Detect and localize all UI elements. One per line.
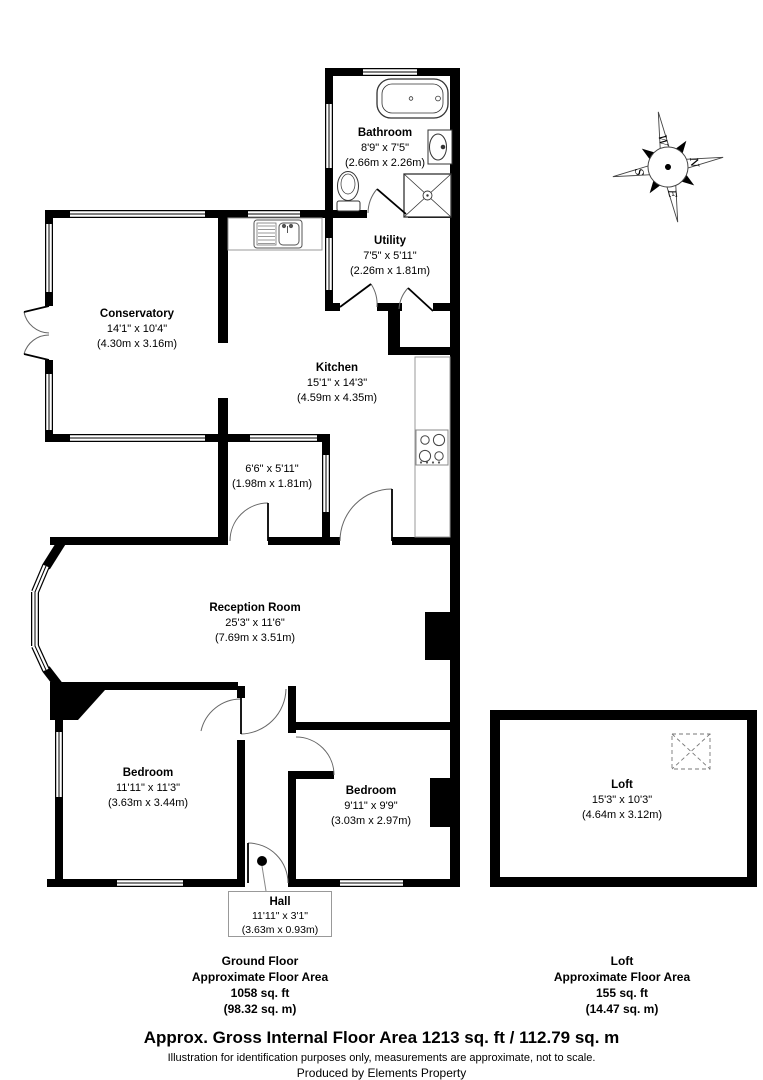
hob-icon (416, 430, 448, 465)
disclaimer-text: Illustration for identification purposes… (0, 1051, 763, 1065)
room-label-utility: Utility 7'5" x 5'11" (2.26m x 1.81m) (350, 234, 430, 279)
room-label-kitchen: Kitchen 15'1" x 14'3" (4.59m x 4.35m) (297, 361, 377, 406)
room-label-lobby: 6'6" x 5'11" (1.98m x 1.81m) (232, 462, 312, 492)
compass-e-label: E (665, 188, 679, 199)
kitchen-sink-icon (254, 220, 302, 248)
room-label-conservatory: Conservatory 14'1" x 10'4" (4.30m x 3.16… (97, 307, 177, 352)
room-label-reception: Reception Room 25'3" x 11'6" (7.69m x 3.… (209, 601, 300, 646)
room-label-bedroom2: Bedroom 9'11" x 9'9" (3.03m x 2.97m) (331, 784, 411, 829)
compass-s-label: S (632, 167, 646, 177)
loft-area-summary: Loft Approximate Floor Area 155 sq. ft (… (554, 953, 690, 1017)
floorplan-canvas: N E S W Bathroom 8'9" x 7'5" (2.66m x 2.… (0, 0, 763, 1080)
front-door-marker (257, 856, 267, 891)
hall-label-box: Hall 11'11" x 3'1" (3.63m x 0.93m) (228, 891, 332, 937)
compass-n-label: N (687, 156, 702, 169)
gross-area-title: Approx. Gross Internal Floor Area 1213 s… (0, 1028, 763, 1048)
doors (24, 189, 433, 883)
footer: Approx. Gross Internal Floor Area 1213 s… (0, 1028, 763, 1080)
credit-text: Produced by Elements Property (0, 1066, 763, 1080)
ground-floor-area-summary: Ground Floor Approximate Floor Area 1058… (192, 953, 328, 1017)
shower-icon (404, 174, 451, 217)
bath-icon (377, 79, 448, 118)
room-label-bathroom: Bathroom 8'9" x 7'5" (2.66m x 2.26m) (345, 126, 425, 171)
compass-rose: N E S W (603, 102, 733, 232)
basin-icon (428, 130, 452, 164)
toilet-icon (337, 172, 360, 212)
room-label-loft: Loft 15'3" x 10'3" (4.64m x 3.12m) (582, 778, 662, 823)
room-label-bedroom1: Bedroom 11'11" x 11'3" (3.63m x 3.44m) (108, 766, 188, 811)
